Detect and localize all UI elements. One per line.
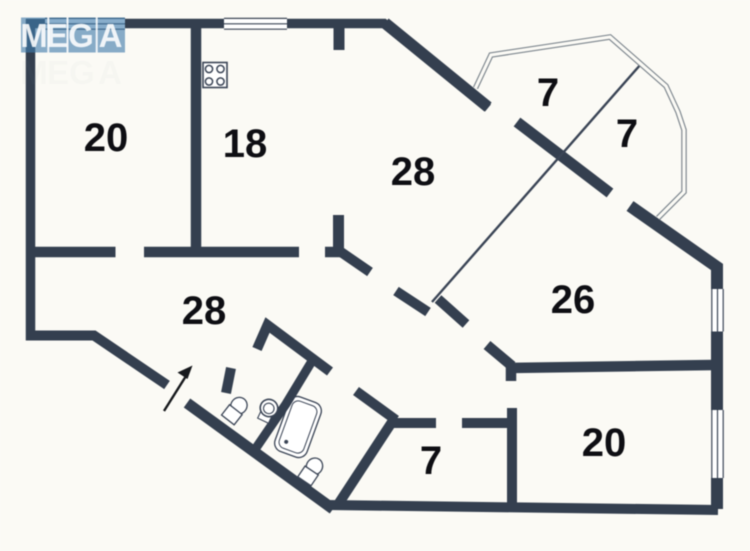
svg-text:E: E xyxy=(47,54,69,91)
svg-text:7: 7 xyxy=(420,439,442,483)
svg-text:20: 20 xyxy=(582,421,627,465)
svg-text:A: A xyxy=(98,54,122,91)
svg-text:28: 28 xyxy=(391,150,436,194)
svg-text:28: 28 xyxy=(182,289,227,333)
svg-text:M: M xyxy=(20,17,48,54)
svg-text:G: G xyxy=(68,17,94,54)
svg-text:7: 7 xyxy=(537,71,559,115)
svg-text:18: 18 xyxy=(223,122,268,166)
svg-text:M: M xyxy=(20,54,48,91)
svg-text:E: E xyxy=(46,17,68,54)
svg-text:G: G xyxy=(69,54,95,91)
svg-text:26: 26 xyxy=(551,278,596,322)
svg-text:20: 20 xyxy=(84,116,129,160)
svg-text:A: A xyxy=(99,17,123,54)
svg-text:7: 7 xyxy=(616,112,638,156)
